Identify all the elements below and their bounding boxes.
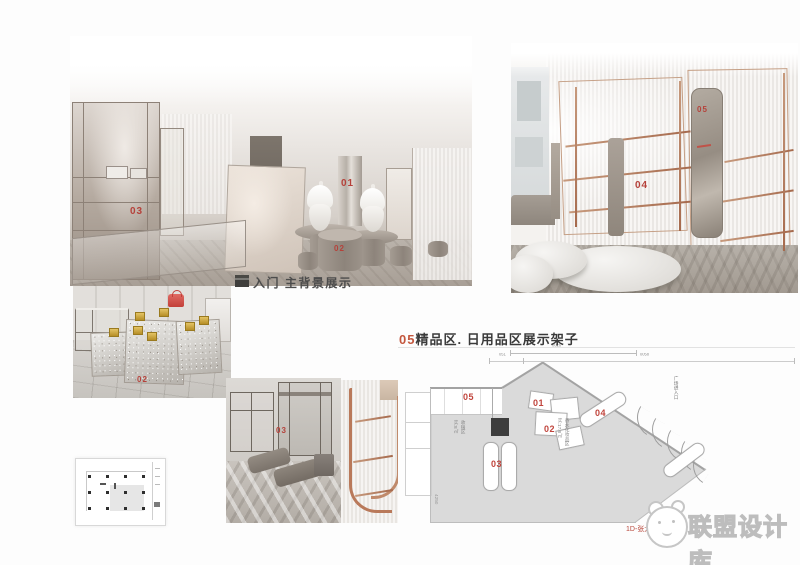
gift-box: [159, 308, 169, 317]
plan-wall: [430, 522, 636, 523]
metal-frame-structure: [278, 382, 332, 456]
keyplan-wall: [86, 471, 146, 472]
keyplan-mark: [100, 483, 106, 485]
dim-label-left: 4250: [432, 494, 439, 504]
dim-line: [489, 361, 795, 362]
plinth: [176, 319, 223, 375]
logo-face: [646, 506, 688, 548]
display-frame: [160, 128, 184, 236]
ceiling-fade: [70, 36, 472, 106]
gift-box: [109, 328, 119, 337]
sofa-back: [511, 195, 555, 225]
tag-03: 03: [276, 426, 287, 435]
keyplan-titleblock: [152, 462, 162, 520]
gift-box: [135, 312, 145, 321]
shelf-box: [106, 166, 129, 179]
watermark-logo: [646, 504, 690, 548]
render-fitting-area: 03: [226, 378, 341, 523]
stool: [428, 241, 448, 257]
tag-05: 05: [697, 105, 708, 114]
plan-tag-04: 04: [595, 408, 606, 418]
mirror-pillar: [338, 156, 362, 226]
plan-table-03: [501, 442, 517, 491]
dim-label-right: 0058: [640, 353, 649, 357]
plan-area-text-perfume: 香水化妆品区实:17.8㎡: [555, 418, 569, 446]
render-curved-wall: 05 04: [511, 43, 798, 293]
keyplan-thumbnail: [75, 458, 166, 526]
caption-thumb: [235, 275, 249, 287]
plan-area-text-cashier: 收银区实:8㎡: [451, 420, 465, 434]
plan-wall: [430, 388, 431, 523]
mannequin: [307, 185, 333, 231]
tag-04: 04: [635, 180, 648, 191]
copper-curve-rail: [371, 396, 398, 499]
plan-tag-01: 01: [533, 398, 544, 408]
stool: [390, 246, 412, 266]
copper-post: [575, 87, 577, 227]
plan-title: 05精品区. 日用品区展示架子: [399, 329, 579, 348]
shelf-box: [130, 168, 147, 179]
plan-entrance-label: 广场进入口: [671, 376, 678, 399]
red-handbag: [168, 294, 184, 307]
render-display-plinths: 02: [73, 286, 231, 398]
plan-room: [405, 422, 432, 450]
dim-label-small: 051: [499, 353, 506, 357]
plan-tag-05: 05: [463, 392, 474, 402]
keyplan-mark: [114, 483, 116, 489]
table-pedestal: [358, 239, 385, 266]
slim-panel: [551, 143, 560, 219]
tag-03: 03: [130, 206, 143, 217]
gift-box: [133, 326, 143, 335]
tag-02: 02: [334, 244, 345, 253]
window-view: [511, 67, 549, 205]
render-copper-curve: [341, 380, 398, 523]
entry-caption: 入门 主背景展示: [253, 274, 352, 291]
copper-post: [783, 73, 785, 251]
render-entrance-display: 03 01 02: [70, 36, 472, 286]
slim-panel: [608, 138, 624, 236]
mannequin: [360, 188, 385, 232]
cube-stool: [314, 454, 334, 476]
plan-title-number: 05: [399, 332, 415, 347]
gift-box: [199, 316, 209, 325]
plan-tag-02: 02: [544, 424, 555, 434]
tag-01: 01: [341, 178, 354, 189]
gift-box: [185, 322, 195, 331]
right-curtain: [412, 148, 472, 280]
wardrobe-panel: [386, 168, 412, 240]
stool: [298, 252, 318, 270]
metal-frame-structure: [230, 392, 274, 452]
keyplan-wall: [86, 471, 87, 511]
plan-title-text: 精品区. 日用品区展示架子: [415, 332, 578, 347]
copper-post: [679, 81, 681, 231]
tag-02: 02: [137, 375, 148, 384]
plan-room: [405, 448, 432, 496]
presentation-board: 03 01 02 入门 主背景展示: [0, 0, 800, 565]
dim-line: [510, 353, 637, 354]
cash-counter-block: [491, 418, 509, 436]
plan-room: [405, 392, 432, 424]
floor-plan: 05 收银区实:8㎡ 03 01 02 香水化妆品区实:17.8㎡ 04: [405, 358, 710, 528]
plan-tag-03: 03: [491, 459, 502, 469]
gift-box: [147, 332, 157, 341]
watermark-text: 联盟设计库: [688, 507, 800, 565]
